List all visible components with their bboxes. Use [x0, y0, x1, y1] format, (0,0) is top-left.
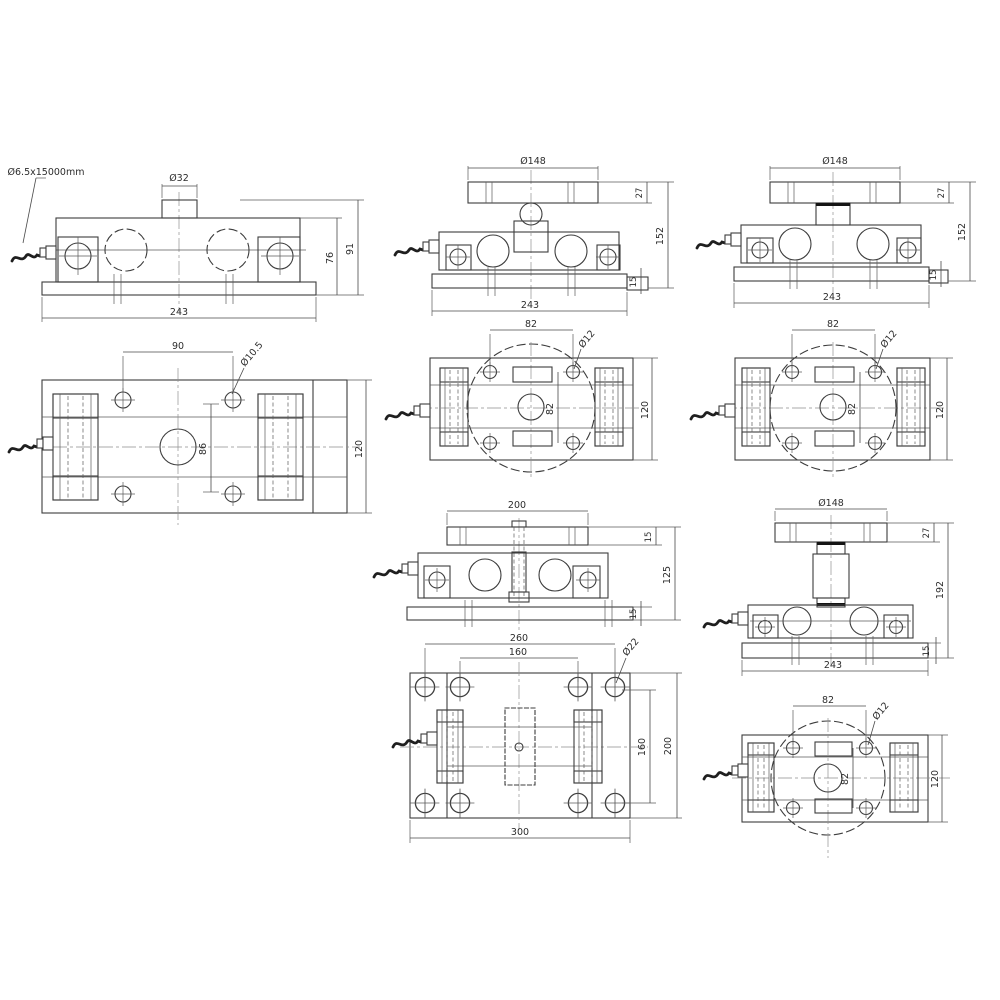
view-plan-rocker-mount: 82 Ø12 82 120 — [704, 695, 950, 858]
dim-hole-span: 90 — [172, 341, 184, 352]
dim-depth: 120 — [354, 440, 365, 458]
clamp-block-right — [897, 368, 925, 446]
dim-base-thickness: 15 — [922, 646, 932, 657]
clamp-block-right — [890, 743, 918, 812]
clamp-block-left — [53, 394, 98, 500]
dim-height: 192 — [935, 581, 946, 599]
dim-depth: 120 — [935, 401, 946, 419]
dim-span-vertical-outer: 200 — [663, 737, 674, 755]
dim-hole-diameter: Ø12 — [577, 328, 598, 350]
cable-connector-icon — [691, 404, 735, 419]
cable-connector-icon — [395, 240, 439, 255]
dim-plate-diameter: Ø148 — [818, 498, 844, 509]
view-plan-pad-mount: 82 Ø12 82 120 — [691, 319, 953, 480]
cable-connector-icon — [704, 764, 748, 779]
dim-hole-span-vertical: 82 — [545, 403, 556, 415]
dim-boss-diameter: Ø32 — [169, 173, 189, 184]
clamp-block-left — [742, 368, 770, 446]
dim-plate-thickness: 15 — [644, 532, 654, 543]
dim-span-vertical-inner: 160 — [637, 738, 648, 756]
view-side-elevation-basic: Ø32 Ø6.5x15000mm 243 76 91 — [8, 167, 364, 322]
dim-hole-span: 82 — [822, 695, 834, 706]
clamp-block-right — [258, 394, 303, 500]
dim-plate-thickness: 27 — [937, 188, 947, 199]
dim-cell-height: 76 — [325, 252, 336, 264]
clamp-block-left — [440, 368, 468, 446]
view-side-pad-mount: Ø148 27 152 15 243 — [697, 156, 976, 308]
dim-center-span: 86 — [198, 443, 209, 455]
dim-depth: 120 — [640, 401, 651, 419]
dim-plate-thickness: 27 — [922, 528, 932, 539]
dim-span-inner: 160 — [509, 647, 527, 658]
dim-base-thickness: 15 — [629, 277, 639, 288]
view-side-bolt-mount: 200 15 125 15 — [374, 500, 681, 632]
load-cell-mounting-drawing: Ø32 Ø6.5x15000mm 243 76 91 — [0, 0, 1000, 1000]
dim-height: 152 — [957, 223, 968, 241]
clamp-block-right — [574, 710, 602, 783]
dim-width: 243 — [521, 300, 539, 311]
view-side-ball-mount: Ø148 27 152 15 243 — [395, 156, 674, 316]
dim-hole-diameter: Ø12 — [871, 700, 892, 722]
dim-plate-diameter: Ø148 — [520, 156, 546, 167]
dim-plate-thickness: 27 — [635, 188, 645, 199]
cable-connector-icon — [12, 246, 56, 261]
dim-hole-diameter: Ø12 — [879, 328, 900, 350]
view-side-rocker-mount: Ø148 27 192 15 — [704, 498, 954, 676]
dim-hole-span: 82 — [525, 319, 537, 330]
cable-connector-icon — [9, 437, 53, 452]
dim-hole-span-vertical: 82 — [840, 773, 851, 785]
cable-connector-icon — [393, 732, 437, 747]
view-plan-basic: 86 90 Ø10.5 120 — [9, 340, 372, 525]
cable-connector-icon — [386, 404, 430, 419]
dim-width: 300 — [511, 827, 529, 838]
dim-base-thickness: 15 — [629, 609, 639, 620]
dim-plate-diameter: Ø148 — [822, 156, 848, 167]
clamp-block-left — [748, 743, 774, 812]
dim-depth: 120 — [930, 770, 941, 788]
dim-hole-span-vertical: 82 — [847, 403, 858, 415]
dim-base-thickness: 15 — [929, 270, 939, 281]
cable-connector-icon — [697, 233, 741, 248]
dim-hole-diameter: Ø10.5 — [239, 340, 266, 369]
dim-height: 152 — [655, 227, 666, 245]
dim-width: 243 — [824, 660, 842, 671]
engineering-drawing-page: Ø32 Ø6.5x15000mm 243 76 91 — [0, 0, 1000, 1000]
dim-plate-width: 200 — [508, 500, 526, 511]
dim-width: 243 — [823, 292, 841, 303]
view-plan-bolt-mount: 260 160 Ø22 — [393, 633, 682, 843]
clamp-block-right — [595, 368, 623, 446]
view-plan-ball-mount: 82 Ø12 82 120 — [386, 319, 658, 480]
dim-hole-span: 82 — [827, 319, 839, 330]
dim-height: 125 — [662, 566, 673, 584]
dim-width: 243 — [170, 307, 188, 318]
cable-connector-icon — [704, 612, 748, 627]
label-cable-spec: Ø6.5x15000mm — [8, 167, 85, 178]
cable-connector-icon — [374, 562, 418, 577]
dim-total-height: 91 — [345, 243, 356, 255]
clamp-block-left — [437, 710, 463, 783]
dim-hole-diameter: Ø22 — [621, 636, 642, 658]
dim-span-outer: 260 — [510, 633, 528, 644]
